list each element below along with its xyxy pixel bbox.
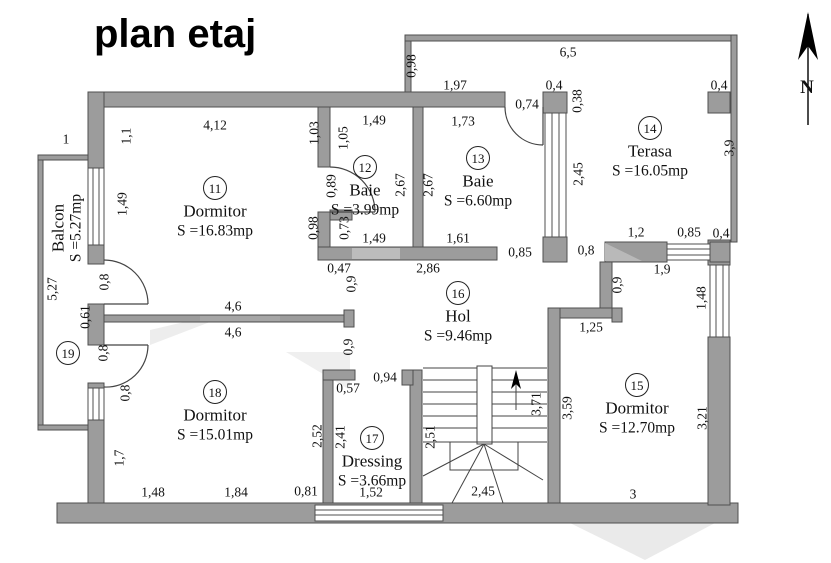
dimension-label: 2,52 [310,424,324,448]
room-number-badge-11: 11 [203,176,227,200]
dimension-label: 4,12 [203,118,227,132]
dimension-label: 4,6 [225,299,242,313]
dimension-label: 1,73 [451,114,475,128]
room-name-15: Dormitor [605,400,668,417]
dimension-label: 4,6 [225,325,242,339]
walls [38,35,738,523]
room-number-badge-12: 12 [353,155,377,179]
room-area-15: S =12.70mp [599,420,675,436]
dimension-label: 0,8 [97,274,111,291]
dimension-label: 0,9 [610,277,624,294]
dimension-label: 1,9 [654,262,671,276]
dimension-label: 6,5 [560,45,577,59]
dimension-label: 3,59 [560,396,574,420]
dimension-label: 0,38 [570,89,584,113]
dimension-label: 1,2 [628,225,645,239]
dimension-label: 0,4 [546,78,563,92]
room-area-18: S =15.01mp [177,427,253,443]
dimension-label: 1 [63,132,70,146]
dimension-label: 0,98 [306,216,320,240]
dimension-label: 2,45 [571,162,585,186]
room-name-13: Baie [462,173,493,190]
room-name-14: Terasa [628,143,672,160]
room-number-badge-14: 14 [638,116,662,140]
dimension-label: 2,41 [333,425,347,449]
dimension-label: 1,49 [115,192,129,216]
dimension-label: 0,9 [344,276,358,293]
dimension-label: 0,73 [337,216,351,240]
page-title: plan etaj [94,12,256,57]
dimension-label: 0,81 [294,484,318,498]
dimension-label: 0,85 [508,245,532,259]
dimension-label: 3 [630,487,637,501]
room-area-13: S =6.60mp [444,193,512,209]
dimension-label: 0,61 [78,305,92,329]
dimension-label: 0,74 [515,97,539,111]
north-arrow-icon [798,12,818,125]
dimension-label: 0,4 [713,226,730,240]
room-name-18: Dormitor [183,407,246,424]
dimension-label: 3,9 [722,140,736,157]
dimension-label: 3,71 [529,392,543,416]
dimension-label: 1,1 [119,128,133,145]
room-number-badge-17: 17 [360,426,384,450]
room-number-badge-18: 18 [203,380,227,404]
room-area-17: S =3.66mp [338,473,406,489]
dimension-label: 1,49 [362,231,386,245]
room-name-12: Baie [349,182,380,199]
dimension-label: 2,45 [471,484,495,498]
room-name-11: Dormitor [183,203,246,220]
room-area-19: S =5.27mp [68,194,84,262]
dimension-label: 1,61 [446,231,470,245]
room-area-11: S =16.83mp [177,223,253,239]
dimension-label: 0,85 [677,225,701,239]
dimension-label: 1,7 [112,450,126,467]
north-label: N [800,77,814,99]
dimension-label: 1,48 [141,485,165,499]
room-number-badge-16: 16 [446,281,470,305]
dimension-label: 2,67 [393,173,407,197]
dimension-label: 0,98 [404,54,418,78]
dimension-label: 1,49 [362,113,386,127]
dimension-label: 1,05 [336,126,350,150]
dimension-label: 1,84 [224,485,248,499]
dimension-label: 2,67 [421,173,435,197]
dimension-label: 5,27 [45,277,59,301]
dimension-label: 0,47 [327,261,351,275]
dimension-label: 1,25 [579,320,603,334]
dimension-label: 0,8 [118,385,132,402]
room-number-badge-15: 15 [625,373,649,397]
dimension-label: 0,8 [578,243,595,257]
room-name-16: Hol [445,308,471,325]
room-number-badge-13: 13 [466,146,490,170]
dimension-label: 0,4 [711,78,728,92]
dimension-label: 1,48 [694,286,708,310]
room-name-17: Dressing [342,453,402,470]
room-area-16: S =9.46mp [424,328,492,344]
floor-plan-page: plan etaj N 6,51,970,40,740,44,121,491,7… [0,0,831,563]
dimension-label: 2,86 [416,261,440,275]
dimension-label: 0,89 [324,174,338,198]
room-name-19: Balcon [50,204,67,252]
dimension-label: 2,51 [423,425,437,449]
room-number-badge-19: 19 [56,341,80,365]
room-area-12: S =3.99mp [331,202,399,218]
dimension-label: 3,21 [695,406,709,430]
floor-plan-drawing [0,0,831,563]
dimension-label: 1,03 [307,121,321,145]
room-area-14: S =16.05mp [612,163,688,179]
dimension-label: 0,94 [373,370,397,384]
dimension-label: 0,57 [336,381,360,395]
dimension-label: 1,97 [443,78,467,92]
dimension-label: 0,9 [341,339,355,356]
dimension-label: 0,8 [96,345,110,362]
